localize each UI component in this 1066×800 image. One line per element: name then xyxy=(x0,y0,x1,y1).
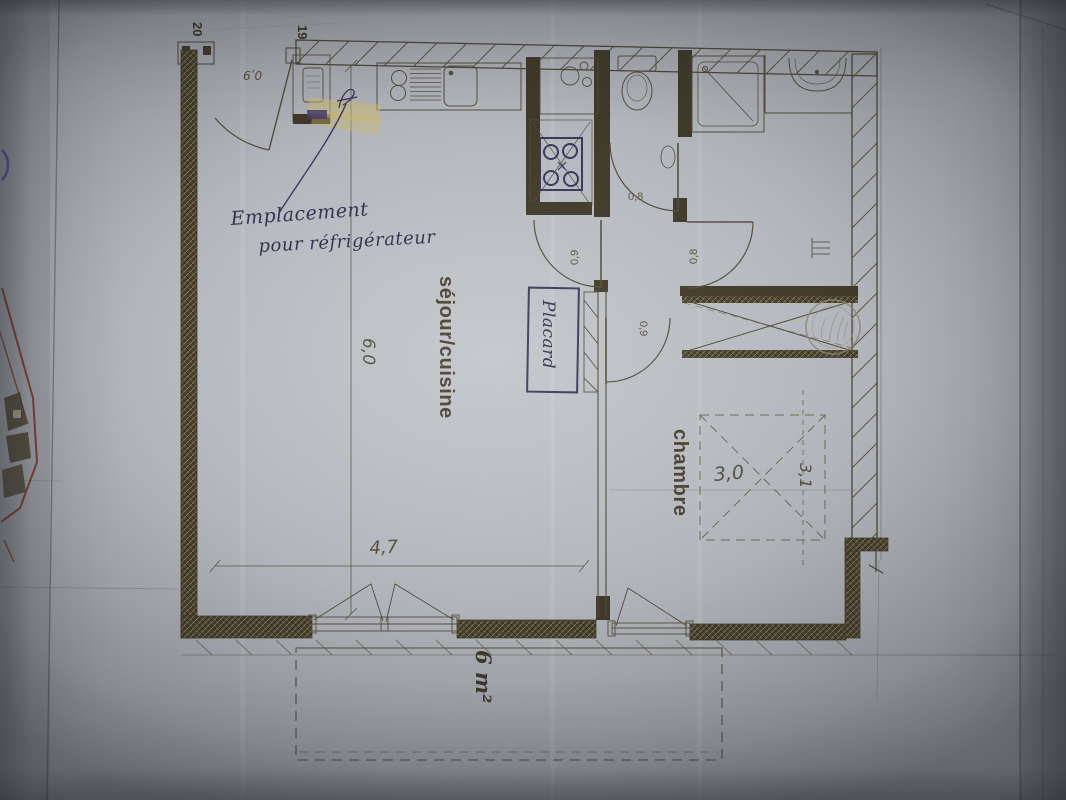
corridor-door-number-19: 19 xyxy=(295,25,309,39)
dim-living-door: 0,9 xyxy=(569,250,581,265)
corridor-door-number-20: 20 xyxy=(190,22,204,36)
dim-entrance-door: 0,9 xyxy=(243,68,262,81)
room-label-living: séjour/cuisine xyxy=(435,276,457,419)
room-label-bedroom: chambre xyxy=(669,429,691,517)
balcony-area-label: 6 m² xyxy=(472,650,495,703)
dim-wc-door: 0,8 xyxy=(628,191,643,203)
floor-plan-photo: 20 19 0,9 séjour/cuisine 6,0 4,7 chambre… xyxy=(0,0,1066,800)
dim-bathroom-door: 0,8 xyxy=(688,249,700,264)
photo-grain xyxy=(0,0,1066,800)
dim-bedroom-door: 0,9 xyxy=(637,321,649,336)
dim-living-depth: 6,0 xyxy=(358,338,377,365)
dim-bedroom-depth: 3,1 xyxy=(796,463,814,488)
dim-living-width: 4,7 xyxy=(369,538,399,559)
closet-label: Placard xyxy=(538,300,557,369)
dim-bedroom-width: 3,0 xyxy=(713,462,745,485)
floor-plan-drawing xyxy=(0,0,1066,800)
